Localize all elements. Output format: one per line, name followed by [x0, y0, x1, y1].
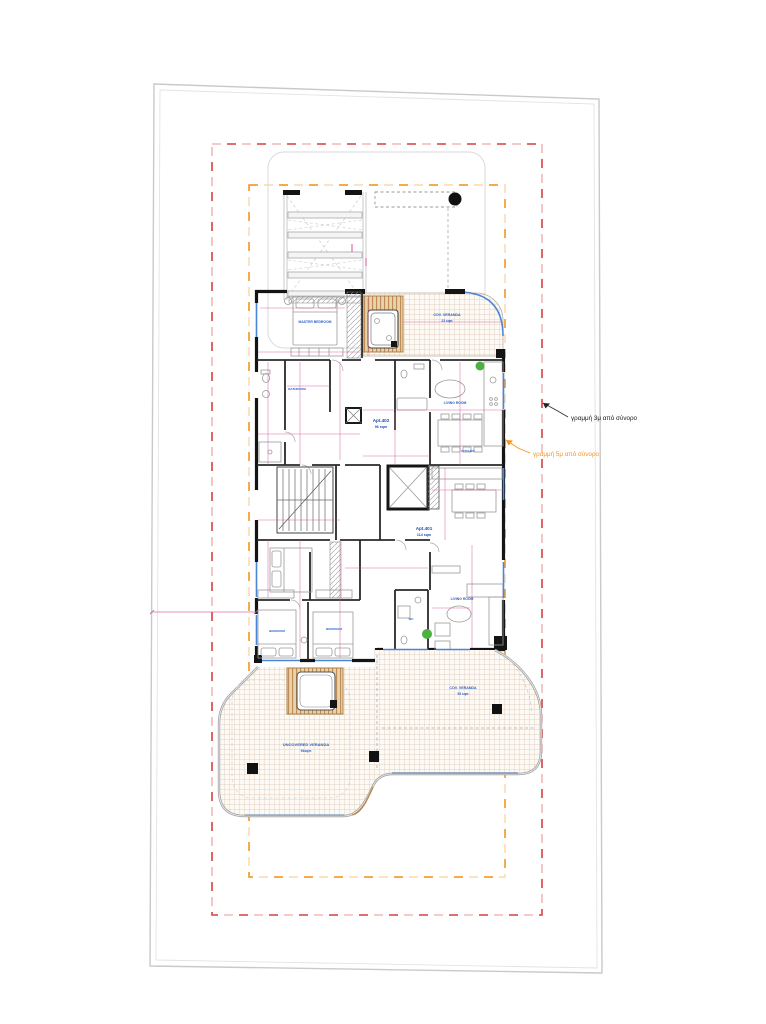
room-label-living-upper: LIVING ROOM [444, 401, 467, 405]
room-label-wc: WC [409, 617, 415, 621]
annotation-5m-text: γραμμή 5μ από σύνορο [533, 450, 600, 458]
veranda-uncovered-area: 94sqm [301, 749, 312, 753]
duct-box [346, 408, 361, 423]
elevator [388, 466, 439, 509]
annotation-3m-text: γραμμή 3μ από σύνορο [571, 414, 638, 422]
plant [476, 362, 485, 371]
room-label-living-lower: LIVING ROOM [451, 597, 474, 601]
wall-hatch-strip [347, 292, 361, 358]
veranda-right-area: 55 sqm [458, 692, 469, 696]
floor-plan-page: MASTER BEDROOM BATHROOM LIVING ROOM KITC… [0, 0, 766, 1024]
setback-annotation-3m: γραμμή 3μ από σύνορο [543, 403, 638, 422]
apt-402-area: 96 sqm [375, 425, 387, 429]
veranda-top-label: COV. VERANDA [433, 313, 461, 317]
leader-arrow-icon [506, 440, 513, 446]
veranda-right-label: COV. VERANDA [449, 686, 477, 690]
ramp-area [283, 190, 462, 303]
room-label-bedroom-left: BEDROOM [269, 629, 285, 633]
corner-column [494, 636, 507, 650]
room-label-bedroom-right: BEDROOM [326, 627, 342, 631]
site-boundary [150, 84, 602, 973]
veranda-bottom [219, 650, 541, 816]
setback-annotation-5m: γραμμή 5μ από σύνορο [506, 440, 600, 458]
jacuzzi-bottom [287, 668, 343, 714]
floor-plan-drawing: MASTER BEDROOM BATHROOM LIVING ROOM KITC… [0, 0, 766, 1024]
apt-401-label: Apt.401 [416, 526, 433, 531]
apt-401-area: 114 sqm [417, 533, 431, 537]
veranda-top-area: 23 sqm [442, 319, 453, 323]
plant [422, 629, 432, 639]
wall-hatch-strip [330, 542, 341, 598]
jacuzzi-top [363, 296, 403, 352]
veranda-uncovered-label: UNCOVERED VERANDA [283, 742, 330, 747]
apt-402-label: Apt.402 [373, 418, 390, 423]
column-dot [449, 193, 462, 206]
room-label-kitchen: KITCHEN [461, 449, 474, 453]
room-label-bathroom: BATHROOM [288, 387, 306, 391]
room-label-master-bedroom: MASTER BEDROOM [299, 320, 332, 324]
stairs [277, 467, 333, 533]
